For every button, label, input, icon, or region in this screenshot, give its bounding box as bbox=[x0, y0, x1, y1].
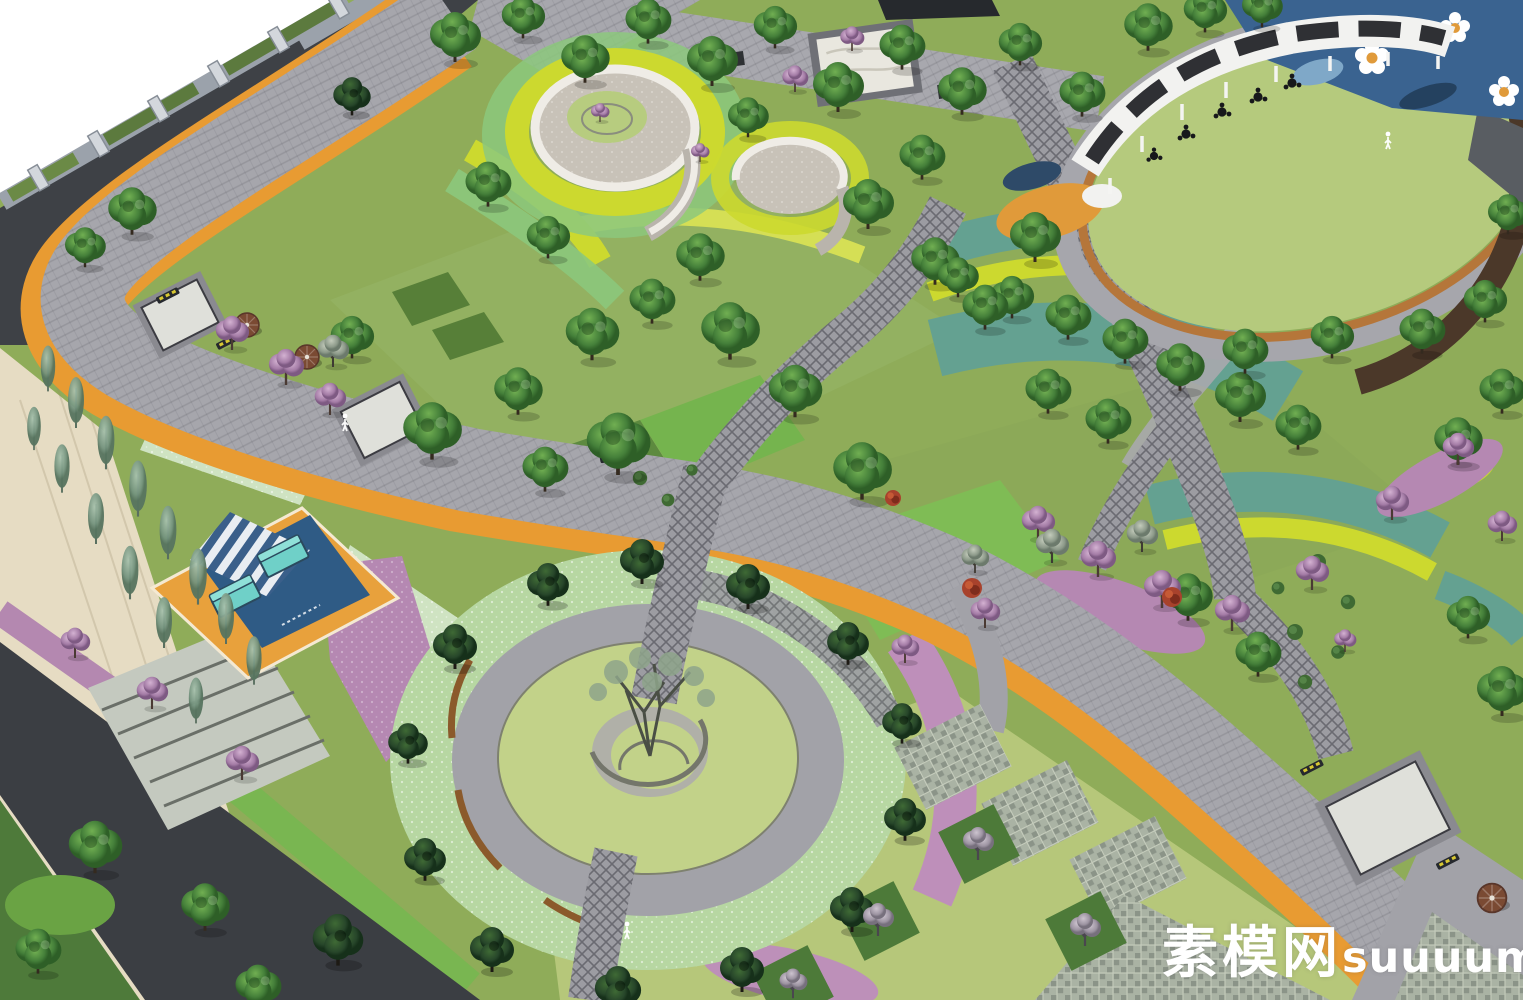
watermark-site-name: 素模网 bbox=[1162, 908, 1342, 989]
red-shrub bbox=[885, 490, 901, 506]
central-circular-plaza bbox=[390, 550, 906, 970]
watermark-domain: suuuum.com bbox=[1342, 933, 1523, 983]
spiral-sunken-garden-large bbox=[497, 47, 733, 234]
red-shrub bbox=[1162, 587, 1182, 607]
watermark: 素模网suuuum.com bbox=[1162, 908, 1523, 989]
red-shrub bbox=[962, 578, 982, 598]
park-scene bbox=[0, 0, 1523, 1000]
park-aerial-render: 素模网suuuum.com bbox=[0, 0, 1523, 1000]
